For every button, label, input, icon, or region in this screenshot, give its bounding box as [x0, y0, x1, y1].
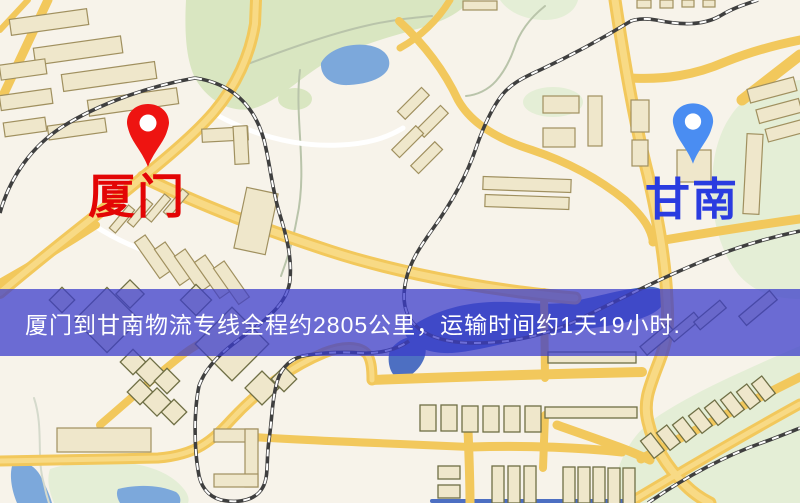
pin-hole [140, 115, 157, 132]
destination-label: 甘南 [645, 178, 739, 223]
map-background [0, 0, 800, 503]
pin-hole [685, 113, 701, 129]
route-info-banner: 厦门到甘南物流专线全程约2805公里，运输时间约1天19小时. [0, 289, 800, 356]
origin-label: 厦门 [88, 175, 186, 222]
origin-pin-icon [124, 102, 172, 170]
route-info-text: 厦门到甘南物流专线全程约2805公里，运输时间约1天19小时. [25, 306, 681, 340]
route-map-image: 厦门 甘南 厦门到甘南物流专线全程约2805公里，运输时间约1天19小时. [0, 0, 800, 503]
destination-pin-icon [670, 101, 716, 167]
